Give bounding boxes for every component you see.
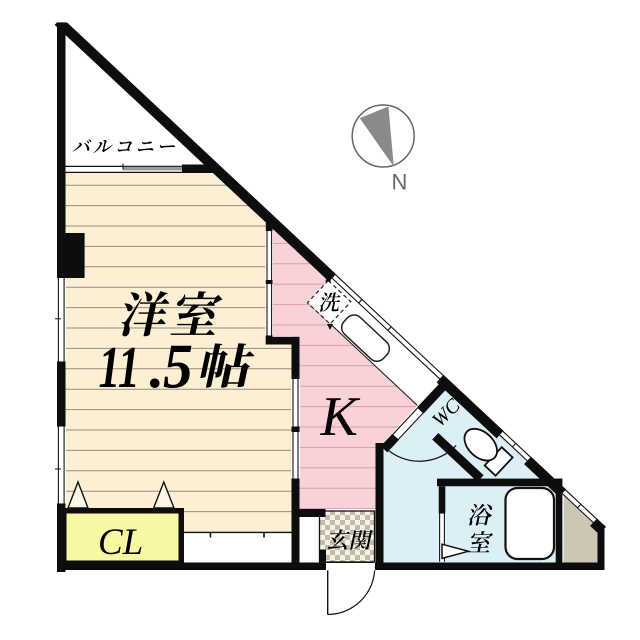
svg-text:5: 5	[163, 332, 193, 402]
svg-text:K: K	[320, 386, 361, 448]
svg-text:N: N	[392, 170, 408, 195]
svg-text:.: .	[150, 334, 165, 400]
svg-text:11: 11	[99, 336, 140, 401]
svg-text:CL: CL	[98, 522, 143, 563]
